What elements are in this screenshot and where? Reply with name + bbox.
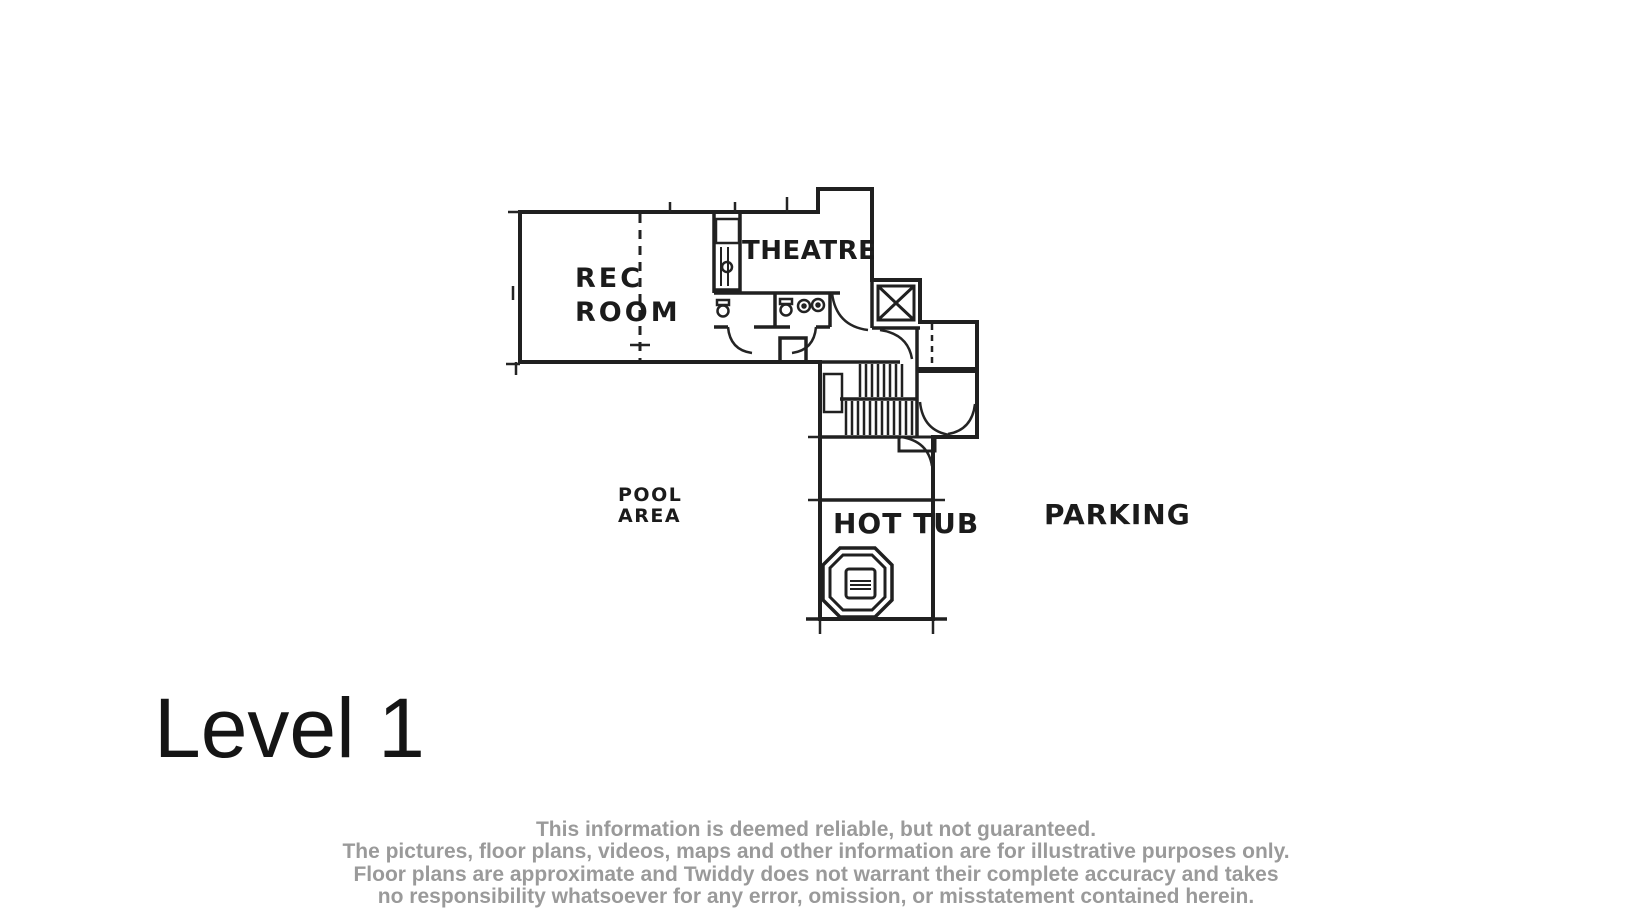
stair-treads-lower (846, 401, 912, 435)
porch-door-arc-right (948, 404, 975, 434)
level-title: Level 1 (154, 686, 425, 770)
ticks-left-wall (506, 212, 520, 375)
elevator-lobby-door-arc (880, 330, 912, 359)
parking-label: PARKING (1044, 498, 1191, 531)
rec-room-label-line2: ROOM (575, 297, 681, 328)
bathroom-fixtures (717, 299, 824, 317)
hot-tub-label: HOT TUB (833, 507, 979, 540)
elevator (878, 286, 914, 320)
hot-tub-seat (846, 569, 875, 598)
toilet-bowl-b (781, 305, 792, 316)
ticks-top-wall (670, 197, 787, 212)
theatre-door-arc (832, 293, 868, 330)
disclaimer-line-2: The pictures, floor plans, videos, maps … (166, 841, 1466, 863)
stair-landing-closet (824, 374, 842, 412)
bath-a-door-arc (728, 327, 752, 353)
pool-area-label-line1: POOL (618, 484, 682, 506)
page-canvas: REC ROOM THEATRE POOL AREA HOT TUB PARKI… (0, 0, 1632, 916)
disclaimer: This information is deemed reliable, but… (166, 819, 1466, 909)
toilet-bowl-a (718, 306, 729, 317)
hot-tub-jets (850, 581, 871, 589)
closet-detail (716, 219, 739, 286)
disclaimer-line-3: Floor plans are approximate and Twiddy d… (166, 864, 1466, 886)
hot-tub-octagon-inner (830, 555, 885, 610)
hot-tub (823, 548, 892, 617)
sink-left-drain (803, 305, 806, 308)
door-arcs (728, 293, 975, 466)
disclaimer-line-4: no responsibility whatsoever for any err… (166, 886, 1466, 908)
disclaimer-line-1: This information is deemed reliable, but… (166, 819, 1466, 841)
floor-plan: REC ROOM THEATRE POOL AREA HOT TUB PARKI… (0, 0, 1632, 916)
elevator-x-mark (878, 286, 914, 320)
stair-treads-upper (860, 364, 902, 397)
entry-step (899, 437, 935, 451)
porch-door-arc-left (920, 402, 950, 435)
pool-area-label-line2: AREA (618, 505, 681, 527)
closet-cabinet (716, 219, 739, 243)
hot-tub-octagon-outer (823, 548, 892, 617)
sink-right-drain (817, 304, 820, 307)
bath-b-door-arc (792, 327, 816, 353)
theatre-label: THEATRE (742, 236, 876, 266)
rec-room-label-line1: REC (575, 263, 643, 294)
